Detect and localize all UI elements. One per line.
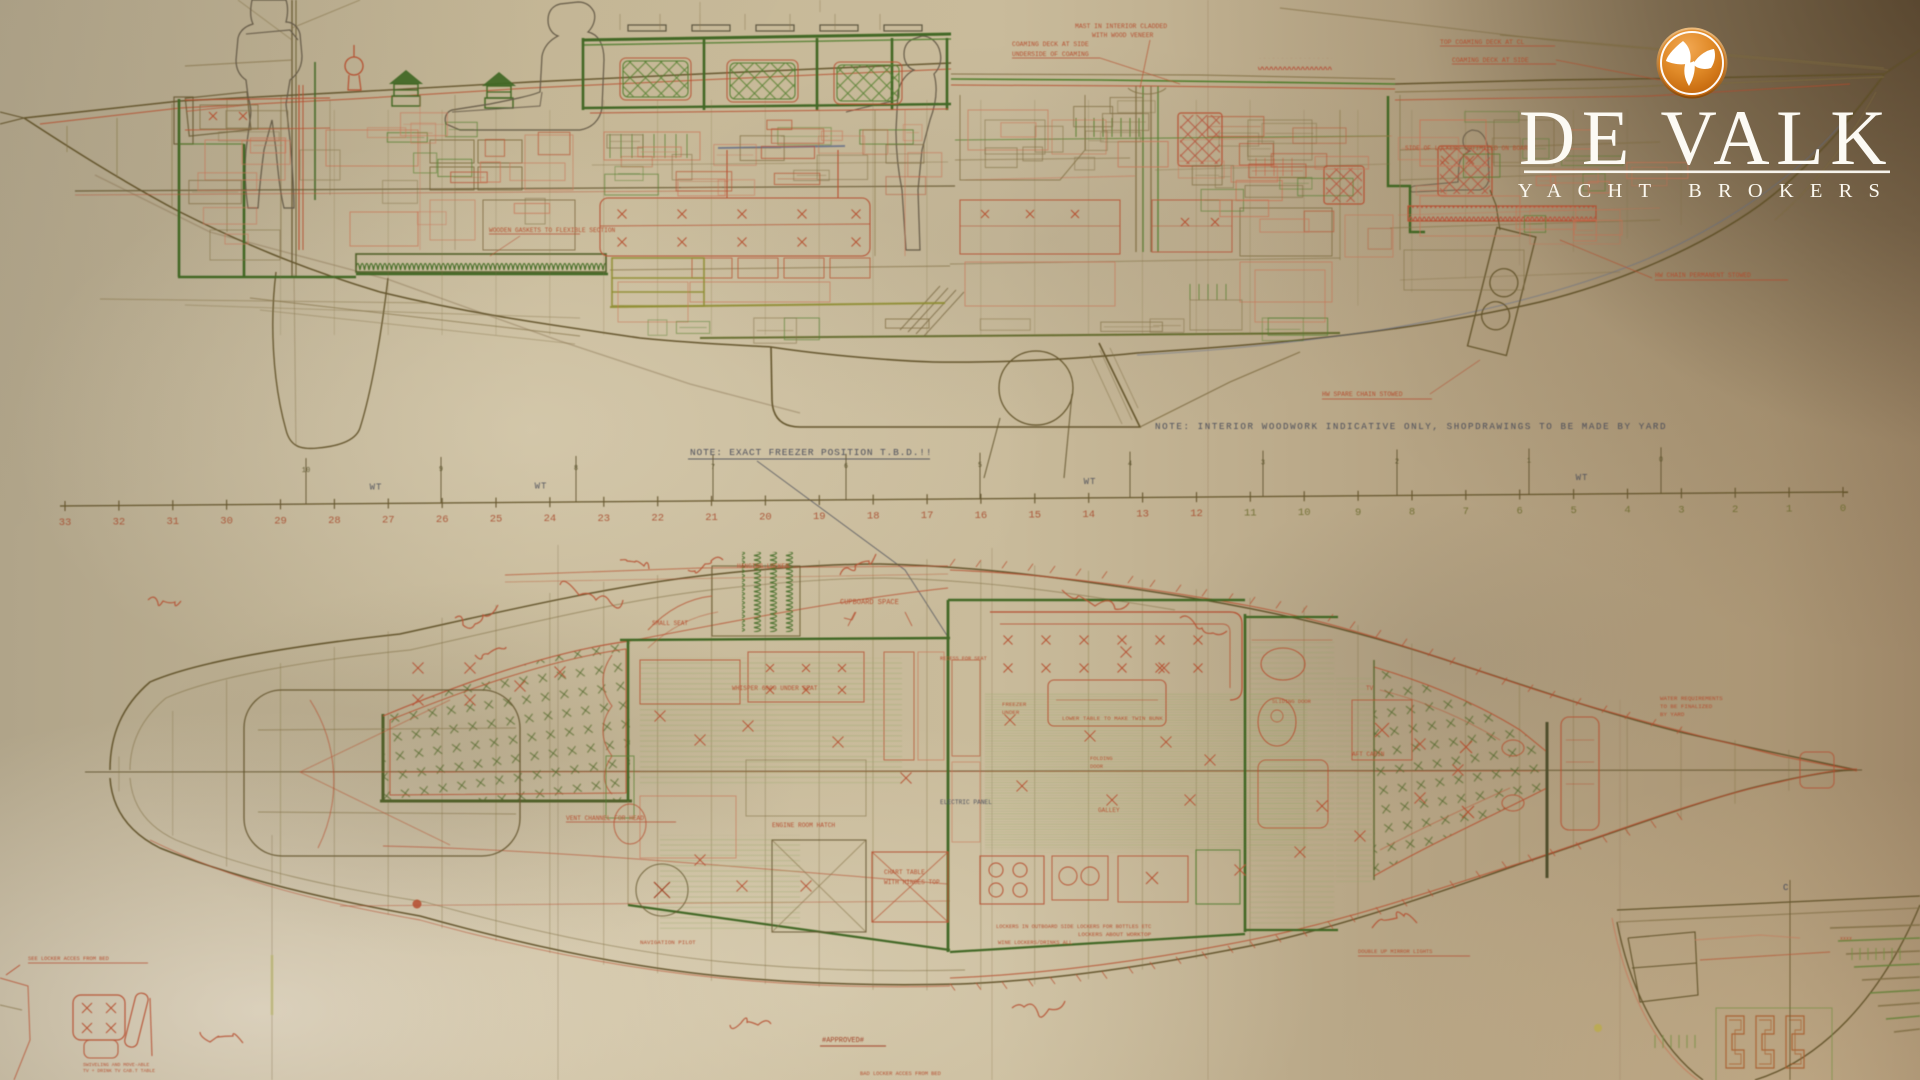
svg-text:MAST IN INTERIOR CLADDED: MAST IN INTERIOR CLADDED bbox=[1075, 23, 1167, 30]
svg-text:2: 2 bbox=[1395, 459, 1399, 467]
svg-text:30: 30 bbox=[220, 516, 233, 528]
svg-text:WT: WT bbox=[1084, 477, 1097, 487]
svg-text:NOTE: INTERIOR WOODWORK INDICA: NOTE: INTERIOR WOODWORK INDICATIVE ONLY,… bbox=[1155, 421, 1667, 432]
svg-text:6: 6 bbox=[1517, 506, 1523, 518]
svg-text:WITH WOOD VENEER: WITH WOOD VENEER bbox=[1092, 32, 1154, 39]
svg-text:29: 29 bbox=[274, 515, 287, 527]
svg-text:9: 9 bbox=[1355, 507, 1361, 519]
svg-text:3: 3 bbox=[1678, 504, 1684, 516]
svg-text:WATER REQUIREMENTS: WATER REQUIREMENTS bbox=[1660, 695, 1723, 702]
svg-text:LOCKERS ABOUT WORKTOP: LOCKERS ABOUT WORKTOP bbox=[1078, 931, 1152, 938]
svg-text:21: 21 bbox=[705, 512, 718, 524]
svg-text:10: 10 bbox=[302, 467, 310, 475]
svg-text:5: 5 bbox=[978, 462, 982, 470]
svg-text:11: 11 bbox=[1244, 508, 1257, 520]
svg-text:#APPROVED#: #APPROVED# bbox=[822, 1037, 864, 1045]
svg-text:14: 14 bbox=[1082, 509, 1095, 521]
svg-text:7: 7 bbox=[711, 464, 715, 472]
svg-text:TV: TV bbox=[1366, 685, 1374, 692]
svg-text:SMALL SEAT: SMALL SEAT bbox=[652, 620, 688, 627]
svg-text:FOLDING: FOLDING bbox=[1090, 756, 1113, 762]
svg-text:WT: WT bbox=[535, 481, 548, 491]
svg-text:DOUBLE UP MIRROR LIGHTS: DOUBLE UP MIRROR LIGHTS bbox=[1358, 949, 1432, 955]
svg-text:HW CHAIN PERMANENT STOWED: HW CHAIN PERMANENT STOWED bbox=[1655, 272, 1751, 279]
svg-text:COAMING DECK AT SIDE: COAMING DECK AT SIDE bbox=[1012, 41, 1089, 48]
svg-text:DE VALK: DE VALK bbox=[1519, 94, 1893, 181]
svg-text:VENT CHANNEL FOR HEAD: VENT CHANNEL FOR HEAD bbox=[566, 815, 644, 822]
svg-text:27: 27 bbox=[382, 515, 395, 527]
svg-text:18: 18 bbox=[867, 511, 880, 523]
svg-text:25: 25 bbox=[490, 514, 503, 526]
svg-text:GALLEY: GALLEY bbox=[1098, 807, 1120, 814]
svg-text:19: 19 bbox=[813, 511, 826, 523]
svg-text:15: 15 bbox=[1028, 509, 1041, 521]
svg-text:TV + DRINK TV CAB.T TABLE: TV + DRINK TV CAB.T TABLE bbox=[83, 1068, 155, 1074]
svg-text:7: 7 bbox=[1463, 506, 1469, 518]
svg-text:AFT CABIN: AFT CABIN bbox=[1352, 751, 1385, 758]
svg-text:C: C bbox=[1783, 883, 1789, 893]
svg-text:LOCKERS IN OUTBOARD SIDE LOCKE: LOCKERS IN OUTBOARD SIDE LOCKERS FOR BOT… bbox=[996, 924, 1151, 930]
svg-text:WT: WT bbox=[1576, 473, 1589, 483]
svg-text:8: 8 bbox=[574, 465, 578, 473]
svg-text:12: 12 bbox=[1190, 508, 1203, 520]
svg-text:WHISPER 6000 UNDER SEAT: WHISPER 6000 UNDER SEAT bbox=[732, 685, 818, 692]
svg-text:24: 24 bbox=[544, 513, 557, 525]
svg-text:4: 4 bbox=[1128, 461, 1132, 469]
svg-text:0: 0 bbox=[1840, 503, 1846, 515]
svg-text:SWIVELING AND MOVE-ABLE: SWIVELING AND MOVE-ABLE bbox=[83, 1062, 149, 1068]
svg-text:1: 1 bbox=[1527, 458, 1531, 466]
svg-text:WINE LOCKERS/DRINKS ALL: WINE LOCKERS/DRINKS ALL bbox=[998, 940, 1072, 946]
svg-text:HW SPARE CHAIN STOWED: HW SPARE CHAIN STOWED bbox=[1322, 391, 1403, 398]
svg-text:WT: WT bbox=[370, 483, 383, 493]
svg-text:3: 3 bbox=[1261, 460, 1265, 468]
svg-text:FREEZER: FREEZER bbox=[1002, 701, 1027, 708]
svg-text:UNDER: UNDER bbox=[1002, 709, 1020, 716]
svg-text:5: 5 bbox=[1570, 505, 1576, 517]
svg-text:SLIDING DOOR: SLIDING DOOR bbox=[1272, 699, 1312, 705]
svg-text:9: 9 bbox=[439, 466, 443, 474]
svg-text:8: 8 bbox=[1409, 506, 1415, 518]
svg-text:1: 1 bbox=[1786, 503, 1792, 515]
svg-text:NOTE: EXACT FREEZER POSITION T: NOTE: EXACT FREEZER POSITION T.B.D.!! bbox=[690, 447, 932, 458]
svg-text:RECESS FOR SEAT: RECESS FOR SEAT bbox=[940, 656, 987, 662]
svg-text:4: 4 bbox=[1624, 505, 1630, 517]
svg-text:NAVIGATION PILOT: NAVIGATION PILOT bbox=[640, 939, 696, 946]
svg-text:2: 2 bbox=[1732, 504, 1738, 516]
svg-text:UNDERSIDE OF COAMING: UNDERSIDE OF COAMING bbox=[1012, 51, 1089, 58]
svg-text:BY YARD: BY YARD bbox=[1660, 711, 1685, 718]
svg-text:17: 17 bbox=[921, 510, 934, 522]
svg-text:DOOR: DOOR bbox=[1090, 764, 1104, 770]
svg-text:26: 26 bbox=[436, 514, 449, 526]
svg-text:TO BE FINALIZED: TO BE FINALIZED bbox=[1660, 703, 1713, 710]
svg-text:31: 31 bbox=[166, 516, 179, 528]
svg-text:28: 28 bbox=[328, 515, 341, 527]
svg-text:CHART TABLE: CHART TABLE bbox=[884, 869, 925, 876]
svg-text:TOP COAMING DECK AT CL: TOP COAMING DECK AT CL bbox=[1440, 39, 1525, 46]
svg-text:10: 10 bbox=[1298, 507, 1311, 519]
svg-text:13: 13 bbox=[1136, 509, 1149, 521]
svg-text:33: 33 bbox=[59, 517, 72, 529]
svg-text:BAD LOCKER ACCES FROM BED: BAD LOCKER ACCES FROM BED bbox=[860, 1071, 941, 1077]
svg-text:20: 20 bbox=[759, 512, 772, 524]
svg-text:32: 32 bbox=[113, 517, 126, 529]
svg-text:WOODEN GASKETS TO FLEXIBLE SEC: WOODEN GASKETS TO FLEXIBLE SECTION bbox=[489, 227, 616, 234]
svg-text:6: 6 bbox=[844, 463, 848, 471]
svg-text:22: 22 bbox=[651, 512, 664, 524]
svg-text:xxxx: xxxx bbox=[1840, 936, 1852, 942]
svg-text:23: 23 bbox=[597, 513, 610, 525]
svg-text:CUPBOARD SPACE: CUPBOARD SPACE bbox=[840, 599, 899, 607]
svg-text:YACHT BROKERS: YACHT BROKERS bbox=[1518, 180, 1896, 202]
svg-text:HANGING LOCKER: HANGING LOCKER bbox=[737, 563, 789, 570]
svg-text:COAMING DECK AT SIDE: COAMING DECK AT SIDE bbox=[1452, 57, 1529, 64]
svg-text:ENGINE ROOM HATCH: ENGINE ROOM HATCH bbox=[772, 822, 835, 829]
svg-text:16: 16 bbox=[975, 510, 988, 522]
svg-text:WITH HINGES TOP: WITH HINGES TOP bbox=[884, 879, 940, 886]
svg-text:SEE LOCKER ACCES FROM BED: SEE LOCKER ACCES FROM BED bbox=[28, 956, 109, 962]
svg-text:LOWER TABLE TO MAKE TWIN BUNK: LOWER TABLE TO MAKE TWIN BUNK bbox=[1062, 715, 1163, 722]
svg-text:0: 0 bbox=[1659, 456, 1663, 464]
svg-text:ELECTRIC PANEL: ELECTRIC PANEL bbox=[940, 799, 992, 806]
svg-text:SIDE OF LOCKERS OPTIMIZED ON B: SIDE OF LOCKERS OPTIMIZED ON BOARD bbox=[1405, 145, 1532, 152]
